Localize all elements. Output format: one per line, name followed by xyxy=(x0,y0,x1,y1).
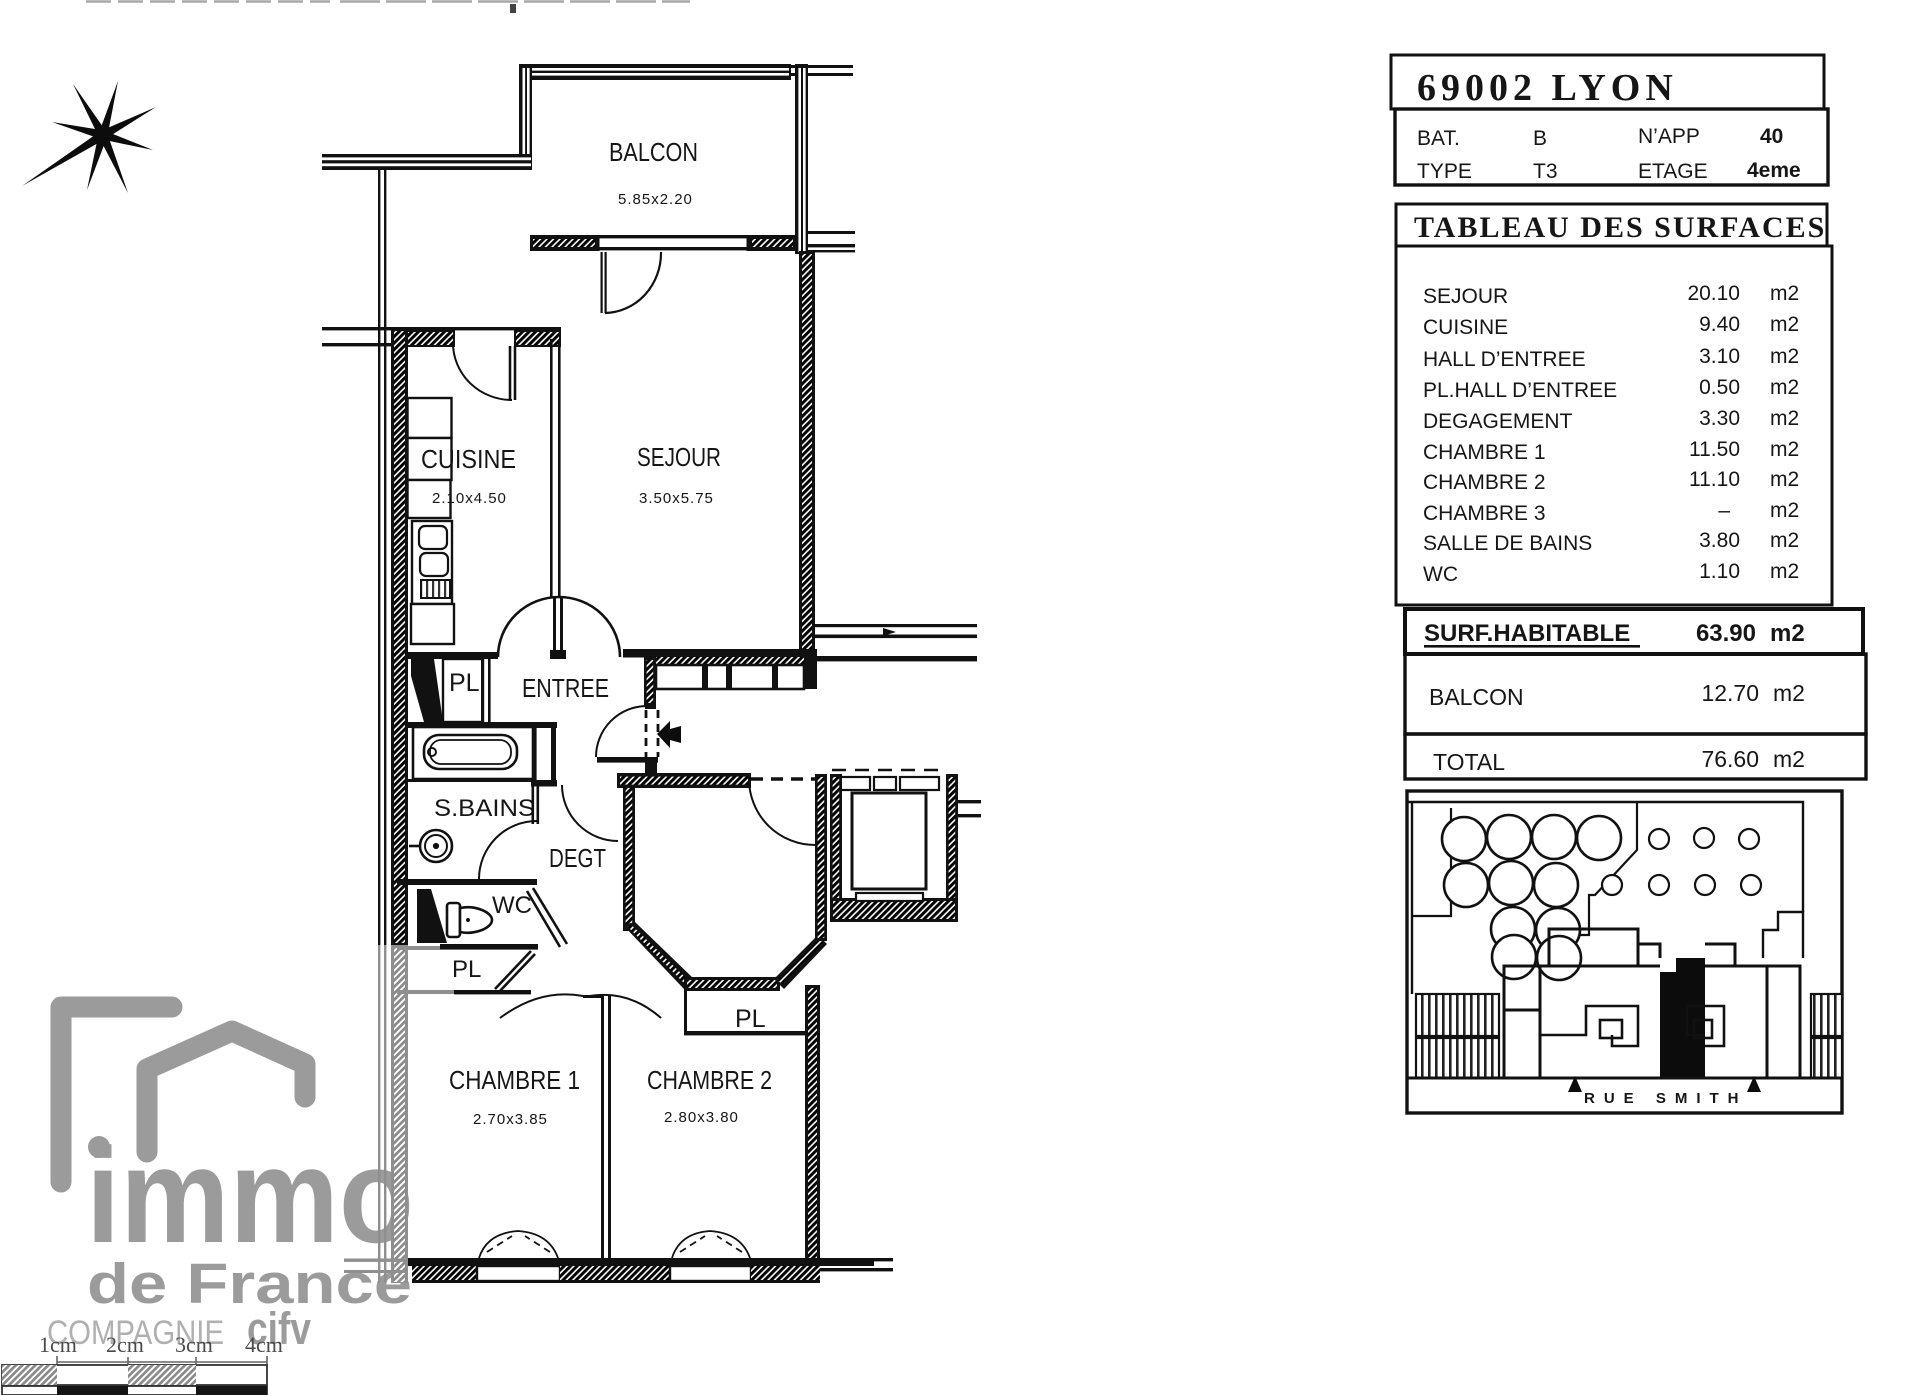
svg-text:ENTREE: ENTREE xyxy=(522,673,609,703)
svg-text:20.10: 20.10 xyxy=(1687,282,1740,305)
svg-text:CHAMBRE 1: CHAMBRE 1 xyxy=(1423,441,1546,464)
svg-text:9.40: 9.40 xyxy=(1699,313,1740,336)
svg-text:3.50x5.75: 3.50x5.75 xyxy=(639,490,714,507)
svg-text:69002 LYON: 69002 LYON xyxy=(1417,67,1678,109)
svg-text:m2: m2 xyxy=(1773,746,1805,772)
svg-text:SURF.HABITABLE: SURF.HABITABLE xyxy=(1424,620,1630,647)
svg-text:BALCON: BALCON xyxy=(1429,684,1524,710)
svg-text:2.10x4.50: 2.10x4.50 xyxy=(432,490,507,507)
svg-text:S.BAINS: S.BAINS xyxy=(434,795,535,822)
svg-text:4cm: 4cm xyxy=(245,1332,283,1357)
svg-text:PL.HALL D’ENTREE: PL.HALL D’ENTREE xyxy=(1423,379,1617,402)
svg-text:WC: WC xyxy=(492,892,532,919)
svg-text:m2: m2 xyxy=(1770,345,1799,368)
svg-text:CUISINE: CUISINE xyxy=(1423,316,1508,339)
svg-text:CHAMBRE 2: CHAMBRE 2 xyxy=(1423,471,1546,494)
svg-text:HALL D’ENTREE: HALL D’ENTREE xyxy=(1423,348,1586,371)
svg-text:B: B xyxy=(1533,127,1547,150)
svg-text:76.60: 76.60 xyxy=(1701,746,1759,772)
svg-text:m2: m2 xyxy=(1770,529,1799,552)
svg-text:m2: m2 xyxy=(1770,468,1799,491)
svg-text:TOTAL: TOTAL xyxy=(1433,749,1505,775)
svg-text:12.70: 12.70 xyxy=(1701,680,1759,706)
svg-text:2.70x3.85: 2.70x3.85 xyxy=(473,1111,548,1128)
svg-text:0.50: 0.50 xyxy=(1699,376,1740,399)
svg-text:SEJOUR: SEJOUR xyxy=(637,442,721,472)
svg-text:11.50: 11.50 xyxy=(1689,438,1740,461)
svg-text:CUISINE: CUISINE xyxy=(421,444,516,474)
svg-text:11.10: 11.10 xyxy=(1689,468,1740,491)
svg-text:m2: m2 xyxy=(1770,313,1799,336)
svg-text:N’APP: N’APP xyxy=(1638,125,1700,148)
svg-text:TYPE: TYPE xyxy=(1417,160,1472,183)
svg-text:m2: m2 xyxy=(1770,282,1799,305)
svg-text:m2: m2 xyxy=(1770,376,1799,399)
svg-text:DEGAGEMENT: DEGAGEMENT xyxy=(1423,410,1573,433)
svg-text:1.10: 1.10 xyxy=(1699,560,1740,583)
svg-text:m2: m2 xyxy=(1773,680,1805,706)
svg-text:TABLEAU DES SURFACES: TABLEAU DES SURFACES xyxy=(1414,211,1826,244)
svg-text:m2: m2 xyxy=(1770,407,1799,430)
svg-text:PL: PL xyxy=(449,669,480,697)
svg-text:4eme: 4eme xyxy=(1747,159,1801,182)
svg-text:CHAMBRE 2: CHAMBRE 2 xyxy=(647,1065,772,1095)
svg-text:3.10: 3.10 xyxy=(1699,345,1740,368)
svg-text:SALLE DE BAINS: SALLE DE BAINS xyxy=(1423,532,1592,555)
svg-text:3cm: 3cm xyxy=(175,1332,213,1357)
svg-text:T3: T3 xyxy=(1533,160,1558,183)
svg-text:2.80x3.80: 2.80x3.80 xyxy=(664,1109,739,1126)
svg-text:2cm: 2cm xyxy=(106,1332,144,1357)
svg-text:m2: m2 xyxy=(1770,438,1799,461)
svg-text:PL: PL xyxy=(452,956,481,983)
svg-text:immo: immo xyxy=(86,1120,414,1271)
svg-text:SEJOUR: SEJOUR xyxy=(1423,285,1508,308)
svg-text:m2: m2 xyxy=(1770,620,1805,647)
svg-text:RUE SMITH: RUE SMITH xyxy=(1584,1090,1748,1107)
svg-text:63.90: 63.90 xyxy=(1696,620,1756,647)
svg-text:m2: m2 xyxy=(1770,499,1799,522)
svg-text:WC: WC xyxy=(1423,563,1458,586)
svg-text:BALCON: BALCON xyxy=(609,137,698,167)
svg-text:1cm: 1cm xyxy=(39,1332,77,1357)
svg-text:CHAMBRE 1: CHAMBRE 1 xyxy=(449,1065,580,1095)
svg-text:5.85x2.20: 5.85x2.20 xyxy=(618,191,693,208)
svg-text:BAT.: BAT. xyxy=(1417,127,1460,150)
svg-text:3.80: 3.80 xyxy=(1699,529,1740,552)
svg-text:–: – xyxy=(1718,499,1730,522)
svg-text:DEGT: DEGT xyxy=(549,843,606,873)
svg-text:ETAGE: ETAGE xyxy=(1638,160,1708,183)
svg-text:PL: PL xyxy=(735,1005,766,1033)
svg-text:3.30: 3.30 xyxy=(1699,407,1740,430)
svg-text:40: 40 xyxy=(1760,125,1783,148)
svg-text:m2: m2 xyxy=(1770,560,1799,583)
svg-text:CHAMBRE 3: CHAMBRE 3 xyxy=(1423,502,1546,525)
